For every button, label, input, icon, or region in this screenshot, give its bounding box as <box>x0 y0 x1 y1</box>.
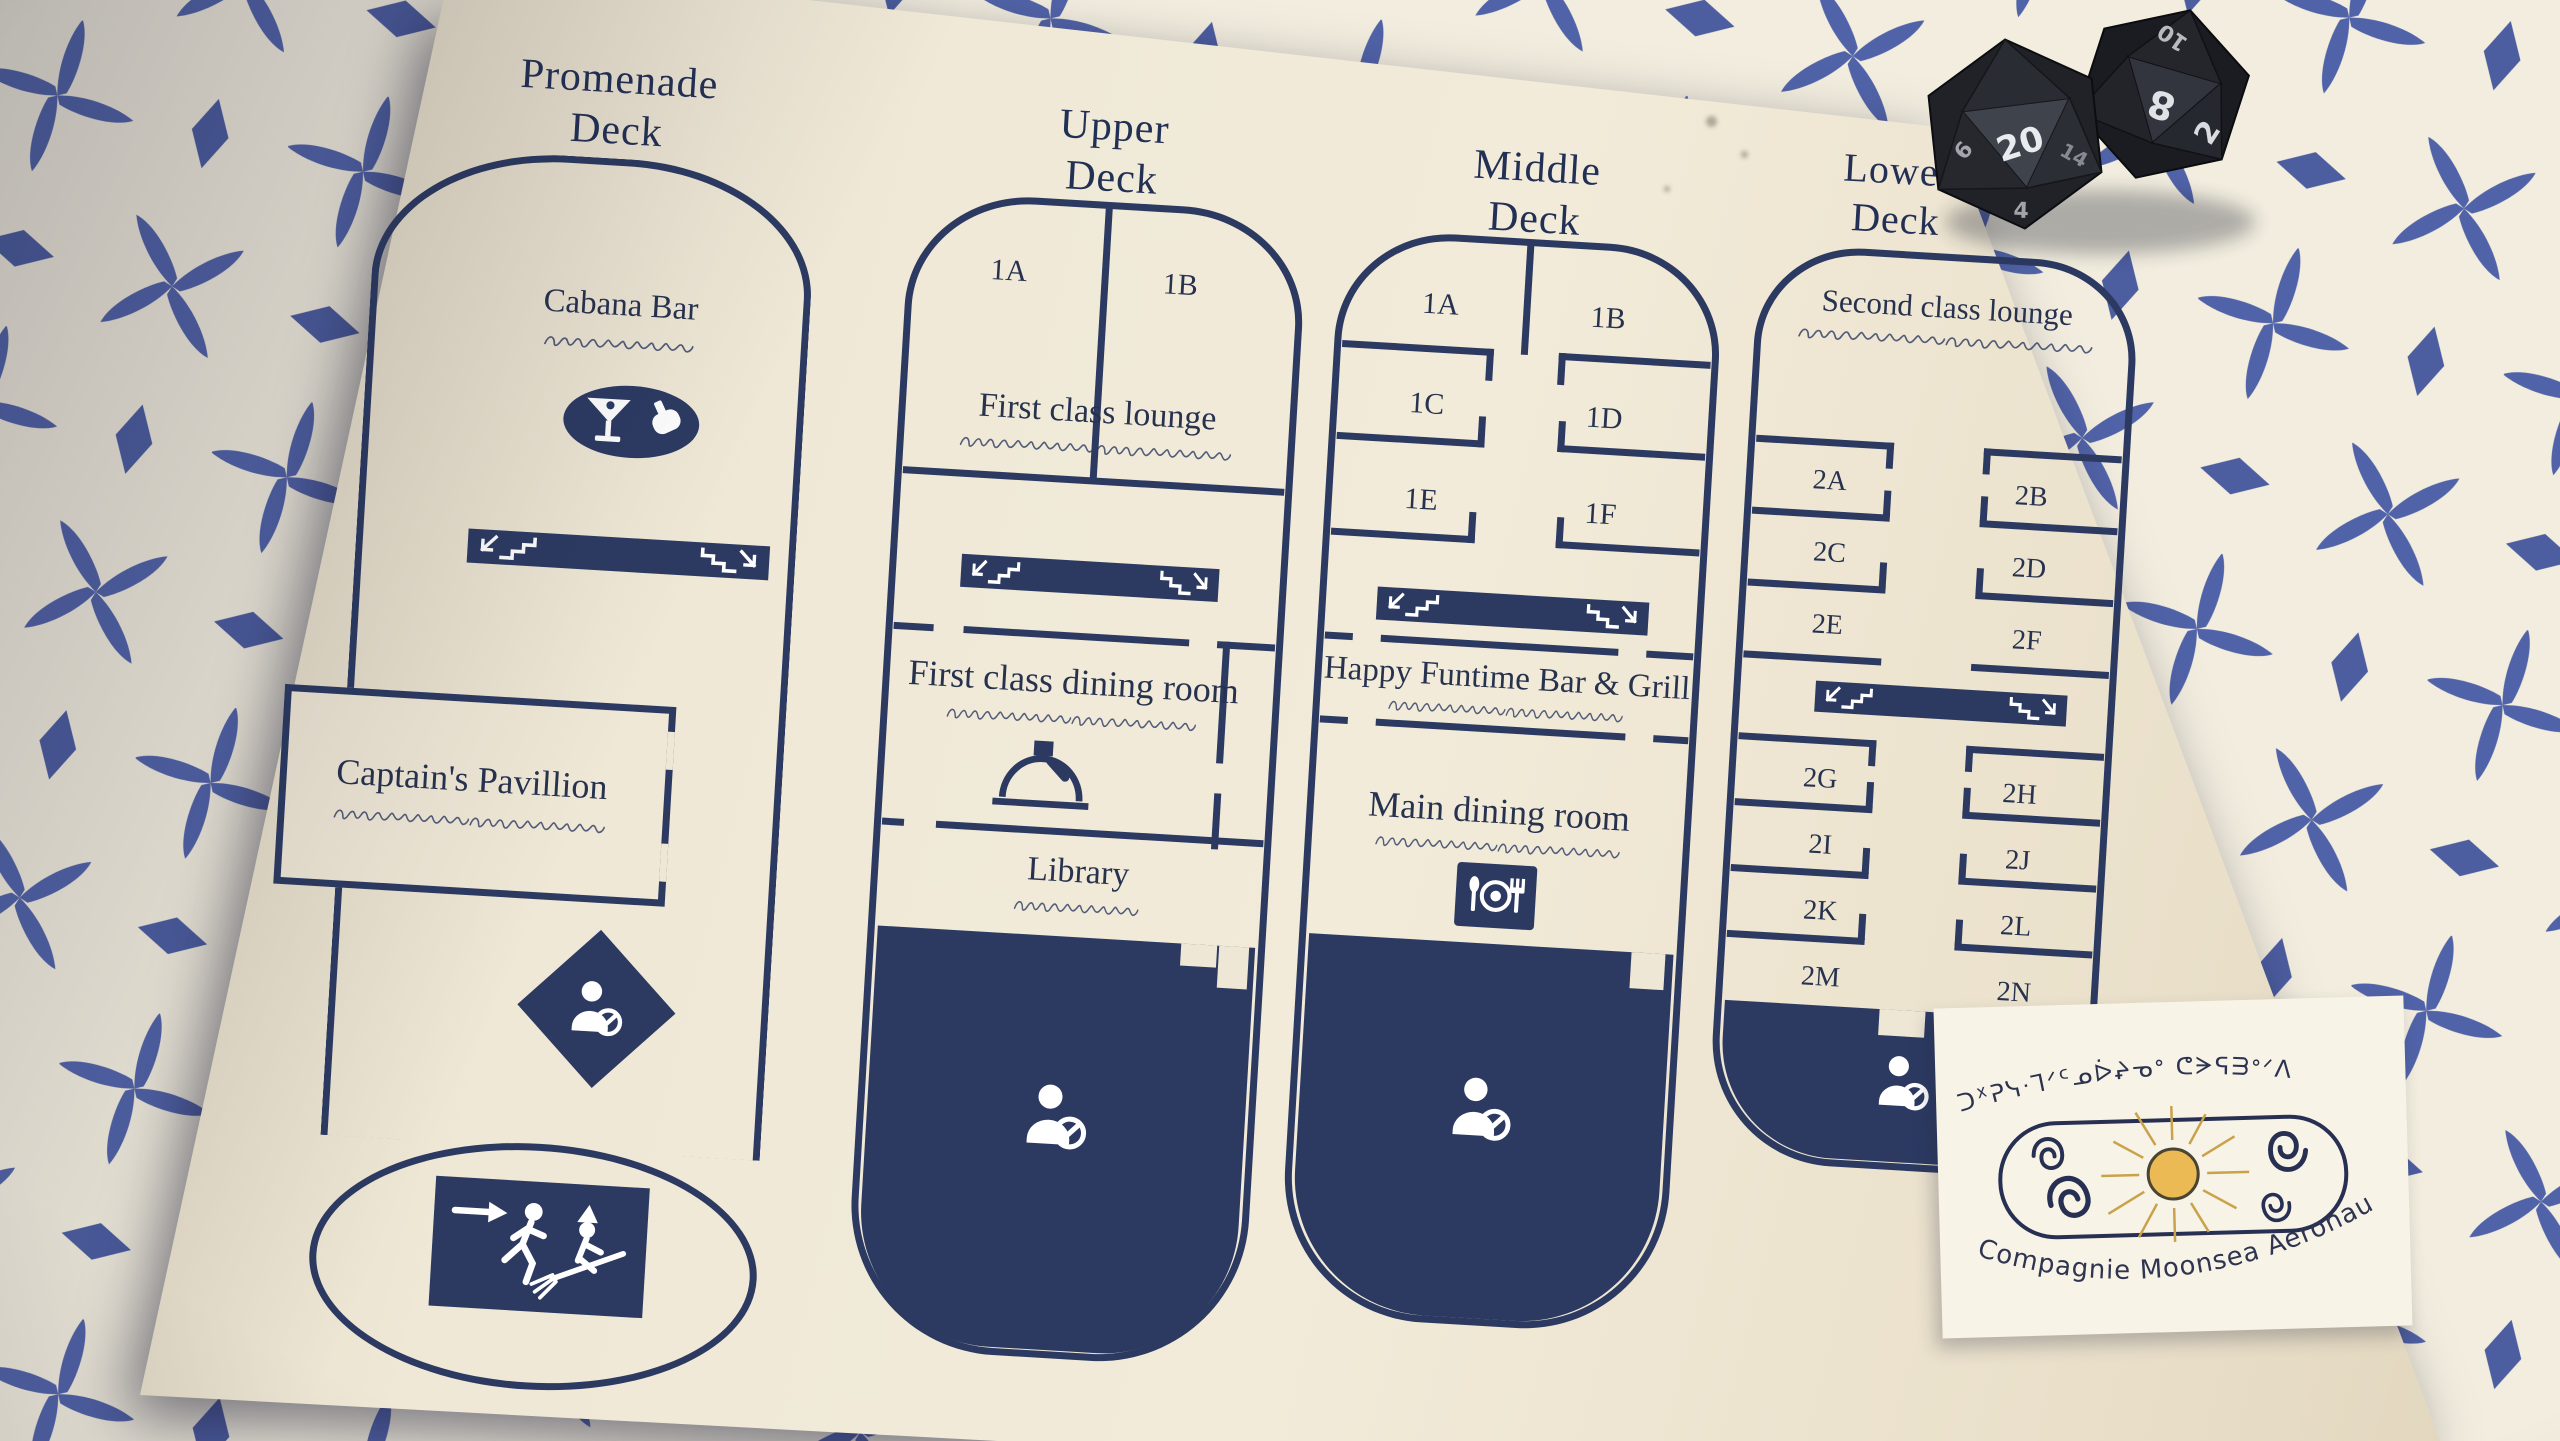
deck-title: Upper Deck <box>911 90 1314 216</box>
dining-sign <box>1454 862 1538 931</box>
captains-pavillion-label: Captain's Pavillion <box>335 750 608 808</box>
room-label: 2C <box>1812 536 1847 570</box>
room-label: 1B <box>1590 301 1627 337</box>
photo-of-airship-deck-plan: Promenade Deck Cabana Bar <box>0 0 2560 1441</box>
room-label: 2L <box>1999 910 2032 944</box>
captains-pavillion-room: Captain's Pavillion <box>273 684 676 907</box>
room-label: 1F <box>1584 497 1618 533</box>
room-label: 2J <box>2004 844 2031 877</box>
room-label: 1E <box>1403 482 1438 518</box>
room-label: 2E <box>1811 608 1844 642</box>
die-face-number: 4 <box>2013 199 2029 225</box>
plate-fork-spoon-icon <box>1459 867 1532 925</box>
company-logo-card: ᑐᕽᕈᓭᐧᒣᐟᑦᓄᐆᖨᓀᐤ ᕦᗒᕋᗱᐤᐟᐱ <box>1933 996 2412 1339</box>
deck-middle: Middle Deck 1A 1B 1C 1D 1E 1F <box>1274 132 1731 1373</box>
deck-title: Promenade Deck <box>395 42 840 170</box>
emergency-exit-sign <box>429 1176 650 1318</box>
room-label: 2N <box>1996 976 2032 1010</box>
room-label: 1C <box>1408 386 1445 422</box>
room-label: 1B <box>1162 267 1199 303</box>
room-label: 2A <box>1812 464 1848 498</box>
crew-area-fill <box>1287 933 1674 1329</box>
room-label: 1D <box>1585 401 1624 437</box>
room-label: 2F <box>2011 624 2042 658</box>
fantasy-script-caption <box>333 806 605 837</box>
exit-running-figures-icon <box>436 1181 643 1313</box>
deck-title: Middle Deck <box>1341 132 1731 257</box>
company-name: Compagnie Moonsea Aeronautique <box>1933 996 2380 1292</box>
room-label: 2B <box>2014 480 2049 514</box>
deck-promenade: Promenade Deck Cabana Bar <box>305 41 825 1425</box>
no-passengers-icon <box>1017 1076 1095 1158</box>
doorway-notch <box>1629 952 1665 990</box>
cloche-icon <box>990 738 1094 816</box>
no-passengers-icon <box>1443 1069 1519 1149</box>
library-label: Library <box>1026 850 1130 894</box>
room-label: 2D <box>2011 552 2047 586</box>
crew-area-fill <box>853 925 1255 1361</box>
room-label: 1A <box>1421 287 1460 323</box>
logo-glyph-text: ᑐᕽᕈᓭᐧᒣᐟᑦᓄᐆᖨᓀᐤ ᕦᗒᕋᗱᐤᐟᐱ <box>1953 1049 2296 1117</box>
no-passengers-icon <box>1870 1049 1936 1119</box>
no-passengers-icon <box>562 974 630 1044</box>
doorway-notch <box>1217 946 1249 990</box>
room-label: 2M <box>1800 960 1841 994</box>
doorway-notch <box>1878 1009 1925 1038</box>
room-label: 1A <box>990 253 1029 289</box>
sun-icon <box>2148 1148 2199 1199</box>
d20-dice: 8 2 10 20 6 4 14 <box>1895 0 2315 274</box>
room-label: 2G <box>1802 762 1838 796</box>
martini-and-bottle-icon <box>571 390 692 455</box>
doorway-notch <box>1180 944 1217 968</box>
room-label: 2I <box>1808 829 1833 862</box>
room-label: 2H <box>2002 778 2038 812</box>
wall-segment <box>882 818 904 826</box>
deck-upper: Upper Deck 1A 1B First class lounge Fir <box>841 90 1315 1401</box>
room-label: 2K <box>1802 894 1838 928</box>
